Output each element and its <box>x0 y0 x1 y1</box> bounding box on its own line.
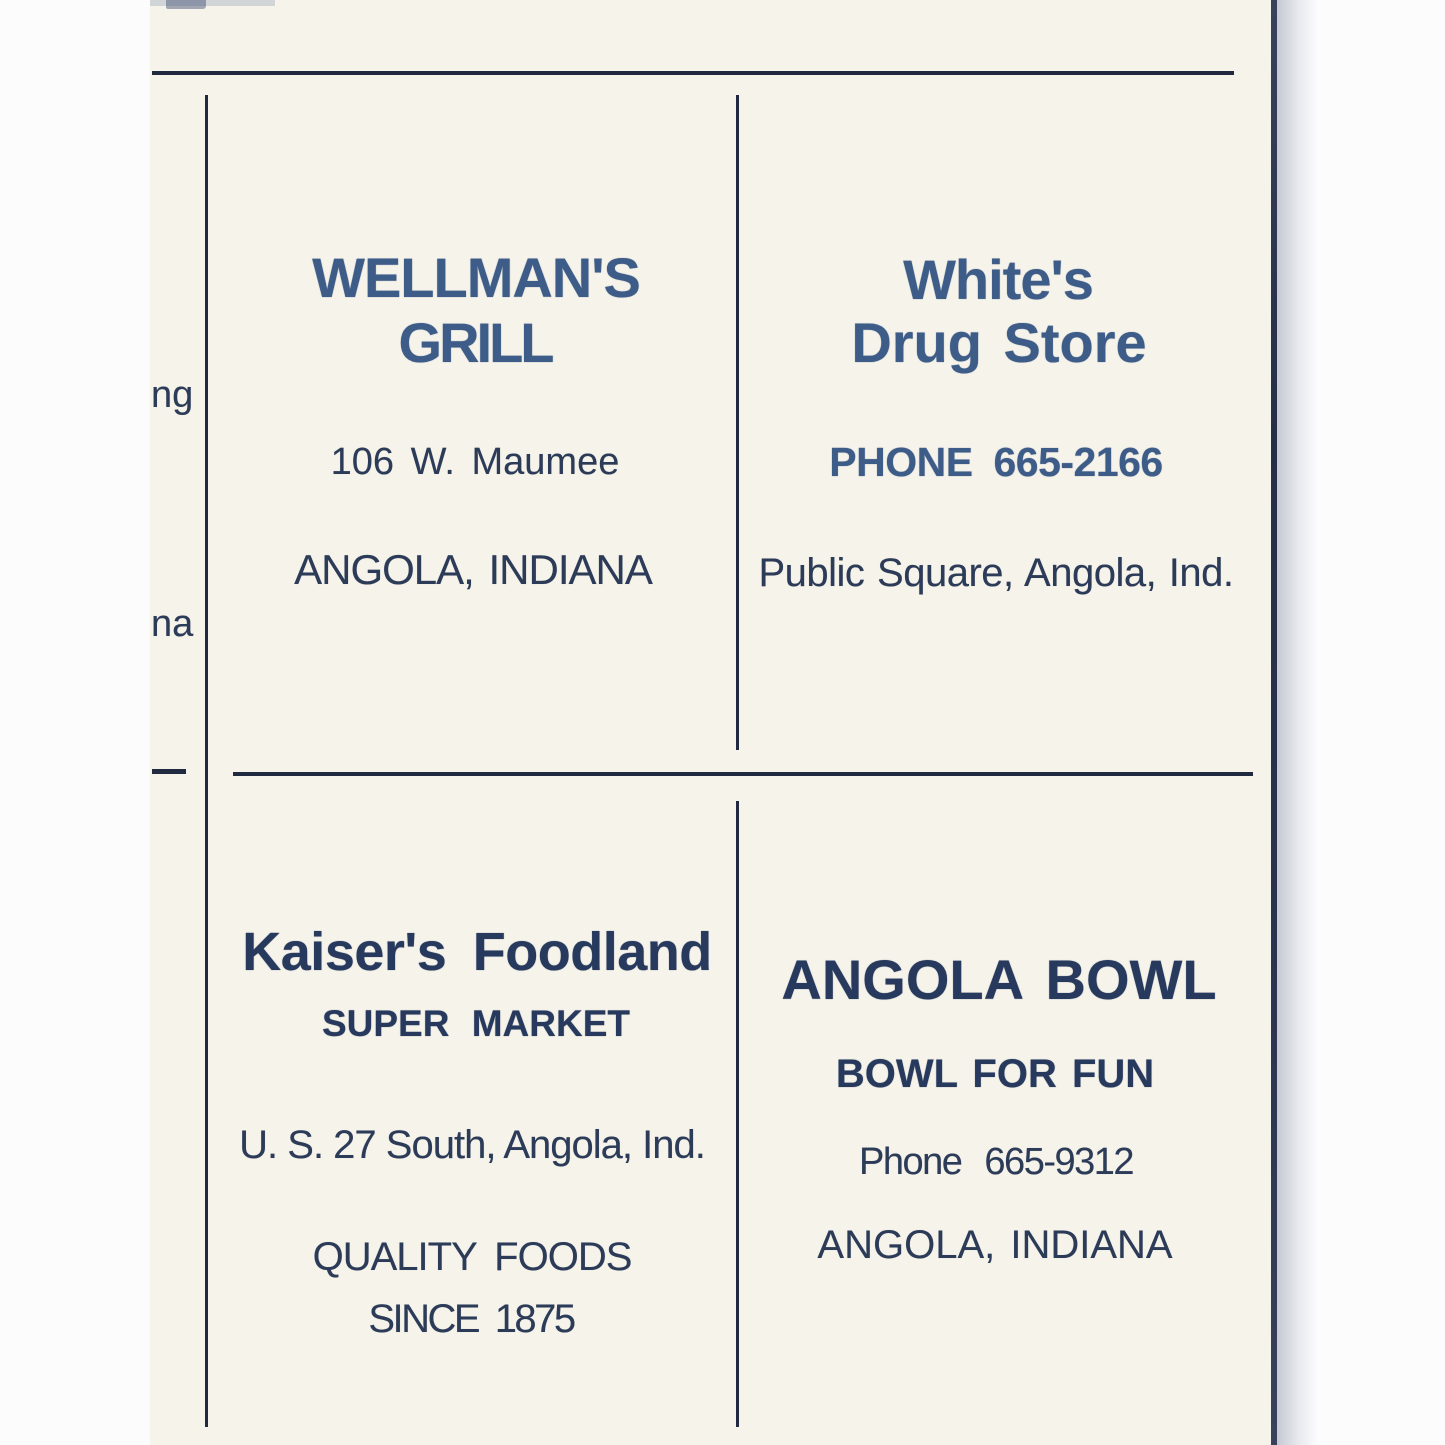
whites-name-line1: White's <box>903 252 1093 308</box>
center-vertical-rule-bottom <box>736 801 739 1427</box>
kaisers-tagline-line1: QUALITY FOODS <box>313 1237 632 1277</box>
wellmans-address: 106 W. Maumee <box>331 443 620 481</box>
wellmans-city: ANGOLA, INDIANA <box>294 549 652 591</box>
middle-horizontal-rule <box>233 772 1253 776</box>
top-horizontal-rule <box>152 71 1234 75</box>
cutoff-text-fragment-bottom: na <box>151 605 193 643</box>
angola-bowl-phone: Phone 665-9312 <box>859 1143 1133 1181</box>
center-vertical-rule-top <box>736 95 739 750</box>
scan-artifact-notch <box>166 0 206 9</box>
angola-bowl-name: ANGOLA BOWL <box>781 952 1216 1008</box>
left-edge-dash-rule <box>152 769 186 774</box>
whites-name-line2: Drug Store <box>851 315 1146 371</box>
wellmans-name-line2: GRILL <box>399 315 552 371</box>
scanned-yearbook-ad-page: ng na WELLMAN'S GRILL 106 W. Maumee ANGO… <box>0 0 1445 1445</box>
cutoff-text-fragment-top: ng <box>151 376 193 414</box>
angola-bowl-city: ANGOLA, INDIANA <box>817 1225 1172 1265</box>
left-vertical-rule <box>205 95 208 1427</box>
whites-phone: PHONE 665-2166 <box>829 442 1162 483</box>
kaisers-tagline-line2: SINCE 1875 <box>368 1299 573 1339</box>
page-edge-shadow <box>1277 0 1317 1445</box>
kaisers-address: U. S. 27 South, Angola, Ind. <box>239 1125 705 1165</box>
wellmans-name-line1: WELLMAN'S <box>312 250 640 306</box>
whites-address: Public Square, Angola, Ind. <box>758 553 1233 593</box>
kaisers-name: Kaiser's Foodland <box>242 925 711 979</box>
angola-bowl-tagline: BOWL FOR FUN <box>836 1054 1154 1094</box>
kaisers-subtitle: SUPER MARKET <box>322 1005 630 1042</box>
